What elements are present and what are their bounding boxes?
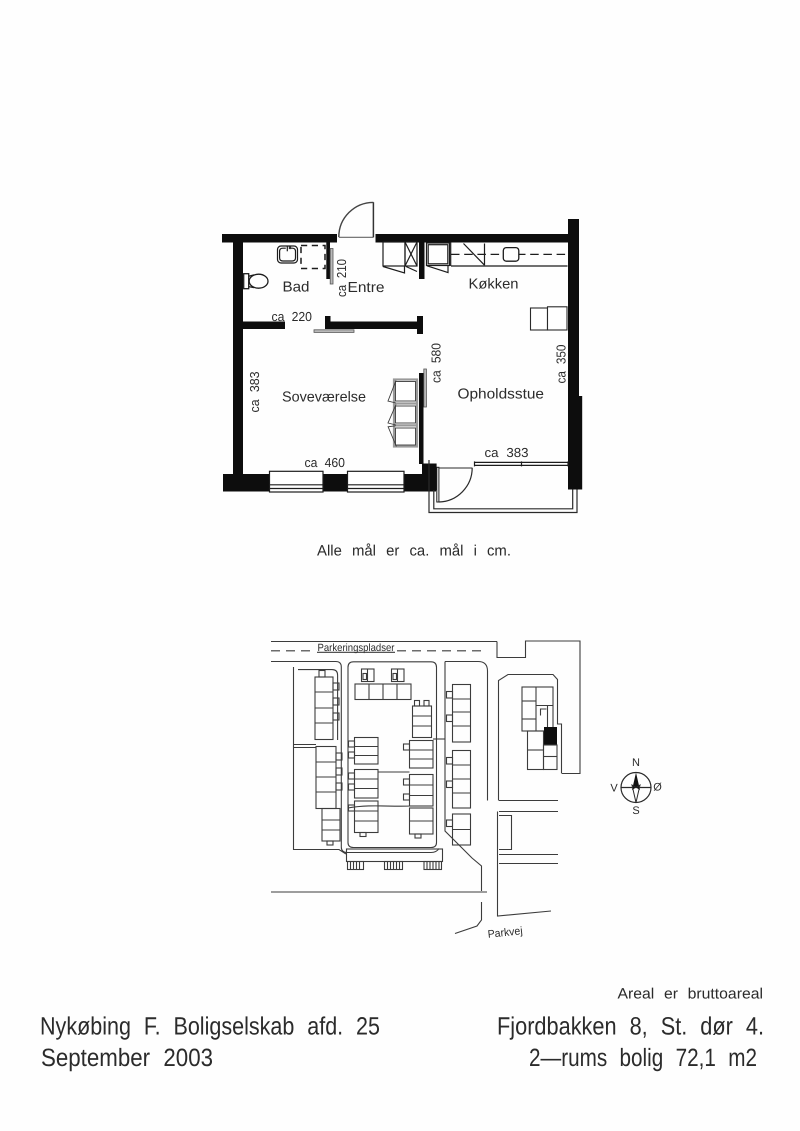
svg-text:ca 383: ca 383 bbox=[247, 372, 262, 413]
svg-text:Ø: Ø bbox=[653, 782, 662, 794]
svg-text:Alle mål er ca. mål i cm.: Alle mål er ca. mål i cm. bbox=[317, 543, 511, 560]
svg-text:ca 460: ca 460 bbox=[305, 455, 346, 470]
svg-text:N: N bbox=[632, 757, 640, 769]
svg-text:Soveværelse: Soveværelse bbox=[282, 390, 366, 406]
svg-text:S: S bbox=[632, 805, 639, 817]
svg-text:Køkken: Køkken bbox=[469, 276, 519, 292]
svg-text:Entre: Entre bbox=[348, 280, 385, 296]
svg-text:Fjordbakken 8, St. dør 4.: Fjordbakken 8, St. dør 4. bbox=[497, 1013, 764, 1041]
svg-text:September 2003: September 2003 bbox=[41, 1044, 213, 1072]
svg-text:Opholdsstue: Opholdsstue bbox=[458, 387, 545, 403]
svg-text:Nykøbing F. Boligselskab afd.: Nykøbing F. Boligselskab afd. 25 bbox=[40, 1013, 380, 1041]
svg-text:ca 210: ca 210 bbox=[334, 259, 349, 297]
svg-text:ca 220: ca 220 bbox=[272, 309, 313, 324]
svg-text:V: V bbox=[610, 783, 618, 795]
svg-text:ca 383: ca 383 bbox=[485, 445, 529, 460]
svg-text:ca 580: ca 580 bbox=[429, 343, 444, 383]
svg-text:Areal er bruttoareal: Areal er bruttoareal bbox=[618, 986, 764, 1003]
svg-text:ca 350: ca 350 bbox=[553, 345, 568, 384]
svg-text:2—rums bolig 72,1 m2: 2—rums bolig 72,1 m2 bbox=[529, 1044, 757, 1072]
svg-text:Bad: Bad bbox=[283, 279, 310, 295]
